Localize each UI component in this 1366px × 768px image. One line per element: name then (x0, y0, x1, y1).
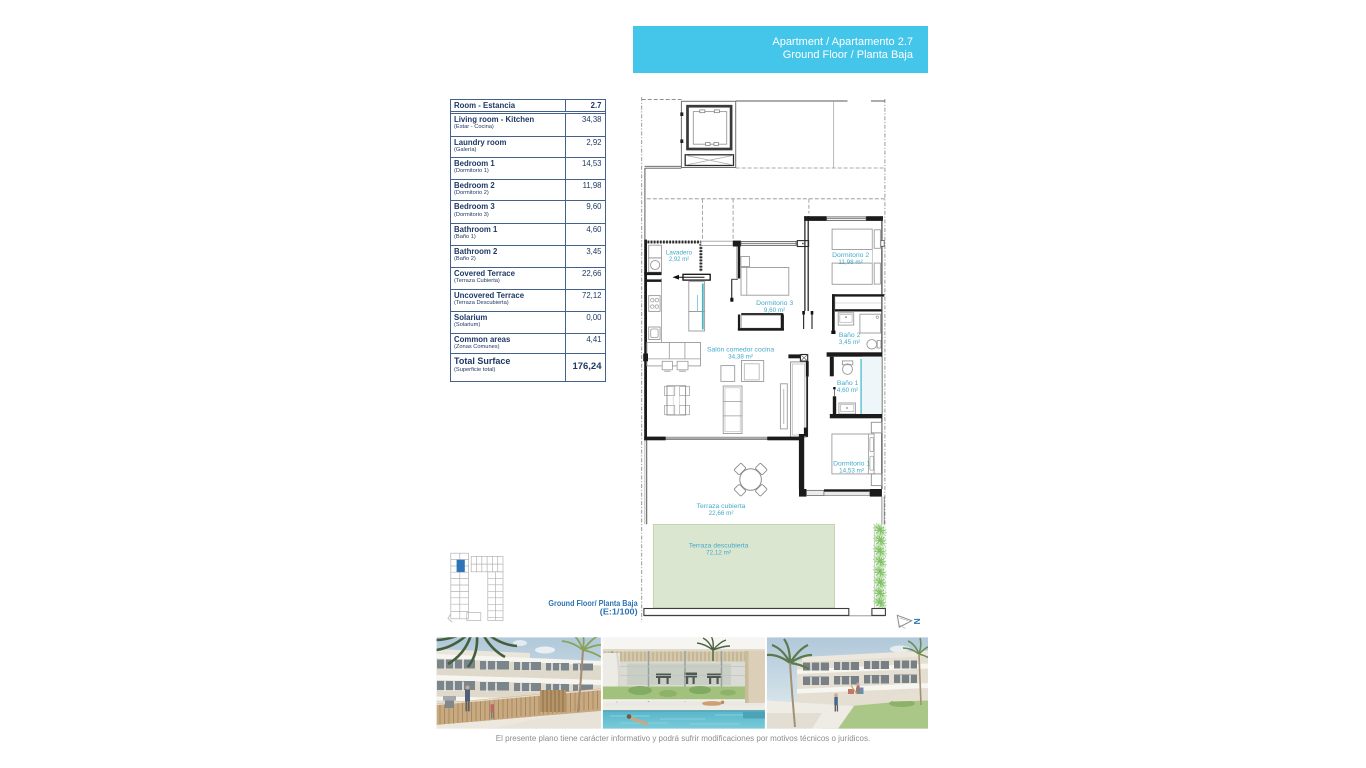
svg-text:Baño 1: Baño 1 (837, 380, 859, 387)
svg-text:2,92 m²: 2,92 m² (669, 257, 689, 263)
svg-text:(E:1/100): (E:1/100) (600, 607, 638, 617)
svg-text:Dormitorio 2: Dormitorio 2 (832, 252, 869, 259)
svg-text:3,45 m²: 3,45 m² (839, 339, 860, 346)
svg-text:9,60 m²: 9,60 m² (764, 307, 785, 314)
svg-text:34,38 m²: 34,38 m² (728, 353, 753, 360)
svg-text:14,53 m²: 14,53 m² (839, 467, 864, 474)
svg-text:22,66 m²: 22,66 m² (709, 510, 734, 517)
svg-text:11,98 m²: 11,98 m² (838, 259, 862, 266)
svg-text:Baño 2: Baño 2 (839, 332, 861, 339)
svg-text:Salón comedor cocina: Salón comedor cocina (707, 346, 774, 353)
svg-text:Dormitorio 3: Dormitorio 3 (756, 300, 793, 307)
svg-text:72,12 m²: 72,12 m² (706, 549, 731, 556)
svg-text:N: N (912, 618, 922, 624)
svg-text:Lavadero: Lavadero (666, 249, 693, 256)
svg-text:Terraza descubierta: Terraza descubierta (689, 542, 749, 549)
svg-text:4,60 m²: 4,60 m² (837, 387, 858, 394)
svg-text:Terraza cubierta: Terraza cubierta (697, 503, 746, 510)
